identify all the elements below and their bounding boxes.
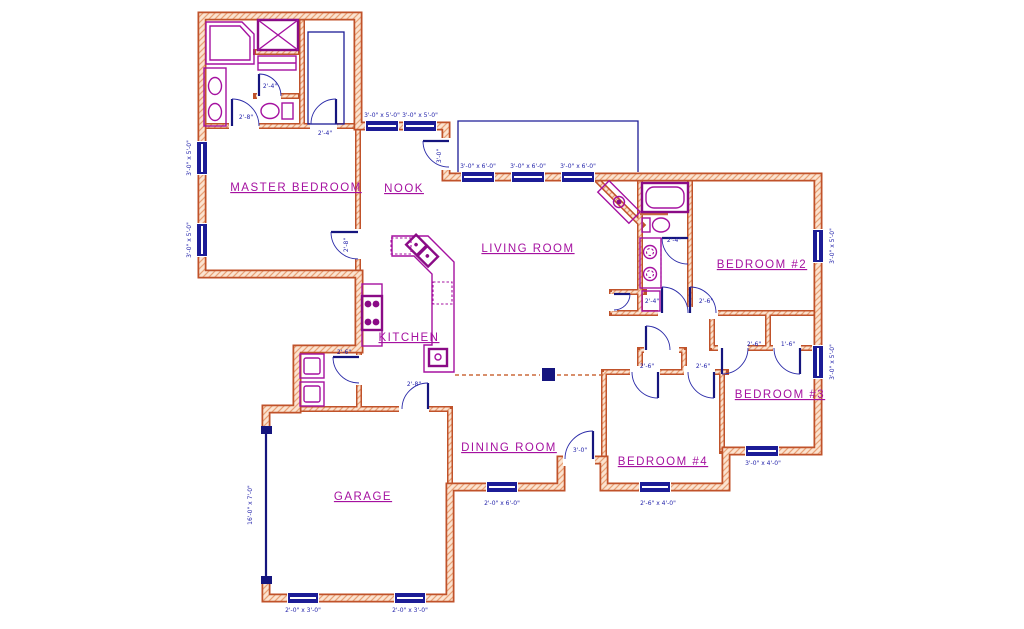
- window-dimension-label: 3'-0" x 5'-0": [364, 112, 400, 119]
- window-dimension-label: 16'-0" x 7'-0": [247, 485, 254, 525]
- room-label-bedroom-2: BEDROOM #2: [717, 259, 807, 271]
- door-dimension-label: 2'-6": [747, 341, 761, 348]
- ceiling-break-line: [455, 368, 604, 381]
- room-label-kitchen: KITCHEN: [379, 332, 440, 344]
- shower: [206, 22, 254, 64]
- window-dimension-label: 3'-0" x 5'-0": [829, 228, 836, 264]
- door-dimension-label: 2'-8": [239, 114, 253, 121]
- window-dimension-label: 2'-6" x 4'-0": [640, 500, 676, 507]
- door-dimension-label: 2'-4": [645, 298, 659, 305]
- window-dimension-label: 2'-0" x 3'-0": [285, 607, 321, 614]
- window-dimension-label: 3'-0" x 6'-0": [560, 163, 596, 170]
- window: [403, 120, 437, 132]
- door-dimension-label: 2'-4": [263, 83, 277, 90]
- window: [287, 592, 319, 604]
- master-bath-fixtures: [204, 20, 298, 126]
- window-dimension-label: 3'-0" x 6'-0": [460, 163, 496, 170]
- room-label-garage: GARAGE: [334, 491, 392, 503]
- window-dimension-label: 2'-0" x 3'-0": [392, 607, 428, 614]
- kitchen-fixtures: [362, 235, 454, 372]
- room-label-nook: NOOK: [384, 183, 424, 195]
- dishwasher: [433, 282, 452, 304]
- door-dimension-label: 2'-6": [696, 363, 710, 370]
- window-dimension-label: 3'-0" x 5'-0": [829, 344, 836, 380]
- window: [486, 481, 518, 493]
- dryer: [300, 382, 324, 406]
- door-dimension-label: 2'-6": [337, 349, 351, 356]
- structural-post: [542, 368, 555, 381]
- peninsula-sink: [429, 349, 447, 366]
- double-vanity-master: [204, 68, 226, 126]
- room-label-living-room: LIVING ROOM: [481, 243, 574, 255]
- window: [511, 171, 545, 183]
- window: [639, 481, 671, 493]
- door-dimension-label: 3'-0": [436, 149, 443, 163]
- door-dimension-label: 2'-4": [318, 130, 332, 137]
- toilet-master: [261, 103, 293, 119]
- window-dimension-label: 3'-0" x 5'-0": [186, 140, 193, 176]
- floor-plan-canvas: MASTER BEDROOMNOOKLIVING ROOMKITCHENBEDR…: [0, 0, 1024, 629]
- window: [812, 345, 824, 379]
- room-label-master-bedroom: MASTER BEDROOM: [230, 182, 362, 194]
- window-dimension-label: 2'-0" x 6'-0": [484, 500, 520, 507]
- linen-shelves: [258, 56, 296, 70]
- walk-in-closet-outline: [308, 32, 344, 124]
- utility-fixtures: [300, 354, 324, 406]
- bathtub-master: [258, 20, 298, 50]
- window-dimension-label: 3'-0" x 5'-0": [186, 222, 193, 258]
- window-dimension-label: 3'-0" x 6'-0": [510, 163, 546, 170]
- window: [745, 445, 779, 457]
- room-label-bedroom-3: BEDROOM #3: [735, 389, 825, 401]
- kitchen-counter: [392, 236, 454, 372]
- bathtub-hall: [642, 183, 688, 212]
- window: [196, 223, 208, 257]
- window: [561, 171, 595, 183]
- window: [394, 592, 426, 604]
- washer: [300, 354, 324, 378]
- room-label-dining-room: DINING ROOM: [461, 442, 557, 454]
- door-dimension-label: 2'-6": [640, 363, 654, 370]
- window-dimension-label: 3'-0" x 5'-0": [402, 112, 438, 119]
- door-dimension-label: 3'-0": [573, 447, 587, 454]
- double-vanity-hall: [640, 238, 661, 288]
- window: [461, 171, 495, 183]
- exterior-walls: [202, 16, 818, 598]
- door-dimension-label: 2'-8": [343, 238, 350, 252]
- door-dimension-label: 2'-6": [699, 298, 713, 305]
- window: [812, 229, 824, 263]
- window: [365, 120, 399, 132]
- door-dimension-label: 2'-4": [667, 237, 681, 244]
- floor-plan-page: MASTER BEDROOMNOOKLIVING ROOMKITCHENBEDR…: [0, 0, 1024, 629]
- door-dimension-label: 1'-6": [781, 341, 795, 348]
- window: [196, 141, 208, 175]
- room-label-bedroom-4: BEDROOM #4: [618, 456, 708, 468]
- window-dimension-label: 3'-0" x 4'-0": [745, 460, 781, 467]
- door-dimension-label: 2'-8": [407, 381, 421, 388]
